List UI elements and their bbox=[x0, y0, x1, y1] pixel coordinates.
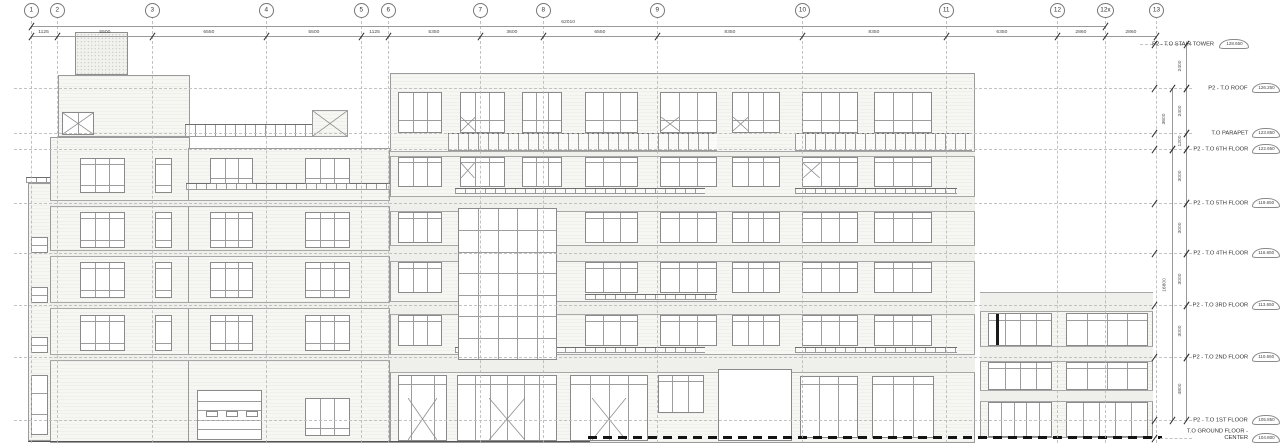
window-mullion bbox=[334, 159, 335, 183]
loading-opening bbox=[718, 369, 792, 441]
window bbox=[155, 315, 172, 351]
grid-bubble-1: 1 bbox=[24, 3, 39, 18]
window-mullion bbox=[211, 268, 252, 269]
window-mullion bbox=[875, 162, 931, 163]
window-mullion bbox=[803, 268, 857, 269]
elevation-value: 122.650 bbox=[1258, 147, 1274, 151]
grid-number: 3 bbox=[150, 7, 154, 13]
grid-bubble-13: 13 bbox=[1149, 3, 1164, 18]
dimension-value-text: 6350 bbox=[996, 30, 1007, 35]
dimension-value: 2860 bbox=[1111, 29, 1151, 35]
window bbox=[80, 315, 125, 351]
wing-parapet-band bbox=[980, 292, 1153, 312]
vertical-dimension-text: 2400 bbox=[1178, 105, 1183, 116]
window bbox=[660, 262, 717, 293]
window-mullion bbox=[413, 93, 414, 132]
strip-window bbox=[31, 287, 48, 303]
dimension-value-text: 2860 bbox=[1075, 30, 1086, 35]
grid-line-3 bbox=[152, 16, 153, 443]
window-mullion bbox=[459, 338, 556, 339]
level-label-line: CENTER bbox=[1176, 435, 1248, 441]
grid-line-11 bbox=[946, 16, 947, 443]
elevation-bubble: 128.650 bbox=[1219, 39, 1249, 49]
garage-door-lite bbox=[246, 411, 258, 417]
window bbox=[80, 158, 125, 193]
level-label-text: P2 - T.O 2ND FLOOR bbox=[1192, 354, 1248, 360]
grid-line-8 bbox=[543, 16, 544, 443]
entry-door-swing bbox=[408, 398, 437, 440]
window-mullion bbox=[586, 218, 637, 219]
window-mullion bbox=[475, 376, 476, 440]
grid-line-1 bbox=[31, 16, 32, 443]
level-label-text: P2 - T.O 6TH FLOOR bbox=[1193, 146, 1248, 152]
level-line bbox=[14, 203, 1192, 204]
window bbox=[210, 262, 253, 298]
window-mullion bbox=[875, 120, 931, 121]
window-mullion bbox=[1127, 363, 1128, 389]
level-line bbox=[14, 305, 1192, 306]
elevation-value: 104.800 bbox=[1258, 436, 1274, 440]
window bbox=[305, 212, 350, 248]
window-mullion bbox=[306, 428, 349, 429]
window-mullion bbox=[590, 376, 591, 440]
grid-bubble-11: 11 bbox=[939, 3, 954, 18]
window-mullion bbox=[1087, 363, 1088, 389]
elevation-value: 105.850 bbox=[1258, 418, 1274, 422]
window-mullion bbox=[803, 120, 857, 121]
dimension-value: 8350 bbox=[854, 29, 894, 35]
window-mullion bbox=[1107, 314, 1108, 345]
window-mullion bbox=[459, 295, 556, 296]
grade-line bbox=[28, 441, 590, 442]
dimension-value-text: 3600 bbox=[506, 30, 517, 35]
window bbox=[874, 92, 932, 133]
grid-line-7 bbox=[480, 16, 481, 443]
window-mullion bbox=[763, 93, 764, 132]
window-mullion bbox=[548, 93, 549, 132]
dimension-value: 3600 bbox=[492, 29, 532, 35]
level-label-text: P2 - T.O 5TH FLOOR bbox=[1193, 200, 1248, 206]
elevation-value: 123.850 bbox=[1258, 131, 1274, 135]
window-mullion bbox=[156, 185, 171, 186]
vertical-dimension: 16800 bbox=[1147, 282, 1181, 288]
window bbox=[660, 212, 717, 243]
level-line bbox=[14, 133, 1192, 134]
overall-dimension-line bbox=[31, 26, 1105, 27]
casement-icon bbox=[461, 117, 475, 131]
window-mullion bbox=[536, 93, 537, 132]
window-mullion bbox=[459, 316, 556, 317]
window-mullion bbox=[81, 218, 124, 219]
window bbox=[802, 262, 858, 293]
grid-number: 11 bbox=[943, 7, 950, 13]
grid-bubble-6: 6 bbox=[381, 3, 396, 18]
grid-line-13 bbox=[1156, 16, 1157, 443]
grid-number: 10 bbox=[798, 7, 805, 13]
window bbox=[155, 262, 172, 298]
floor-band bbox=[980, 390, 1153, 402]
window-mullion bbox=[912, 93, 913, 132]
level-label-text: P2 - T.O ROOF bbox=[1209, 85, 1248, 91]
window bbox=[802, 315, 858, 346]
window-mullion bbox=[733, 321, 779, 322]
grid-bubble-5: 5 bbox=[354, 3, 369, 18]
garage-door-lite bbox=[206, 411, 218, 417]
window-mullion bbox=[306, 218, 349, 219]
window bbox=[80, 262, 125, 298]
window-mullion bbox=[399, 268, 441, 269]
window-mullion bbox=[399, 218, 441, 219]
window-mullion bbox=[81, 164, 124, 165]
ground-window bbox=[658, 375, 704, 413]
window-mullion bbox=[399, 162, 441, 163]
window bbox=[398, 157, 442, 187]
vertical-dimension-text: 2400 bbox=[1178, 60, 1183, 71]
window bbox=[210, 212, 253, 248]
vertical-dimension-line bbox=[1186, 44, 1187, 420]
window bbox=[585, 92, 638, 133]
window-mullion bbox=[679, 93, 680, 132]
window-mullion bbox=[81, 268, 124, 269]
grid-bubble-9: 9 bbox=[650, 3, 665, 18]
window-mullion bbox=[873, 384, 933, 385]
grid-bubble-12: 12 bbox=[1050, 3, 1065, 18]
grid-number: 12x bbox=[1100, 7, 1110, 13]
level-label: P2 - T.O 6TH FLOOR bbox=[1140, 145, 1248, 153]
window bbox=[305, 262, 350, 298]
vertical-dimension-text: 3000 bbox=[1178, 222, 1183, 233]
window-mullion bbox=[913, 377, 914, 437]
window-mullion bbox=[661, 321, 716, 322]
window bbox=[732, 315, 780, 346]
level-label: P2 - T.O 1ST FLOOR bbox=[1140, 416, 1248, 424]
level-label: P2 - T.O 4TH FLOOR bbox=[1140, 249, 1248, 257]
vertical-dimension-text: 3600 bbox=[1162, 113, 1167, 124]
window bbox=[398, 262, 442, 293]
window-mullion bbox=[620, 93, 621, 132]
window bbox=[732, 262, 780, 293]
window bbox=[874, 315, 932, 346]
window-mullion bbox=[211, 290, 252, 291]
strip-window-tall bbox=[31, 375, 48, 435]
window-mullion bbox=[821, 93, 822, 132]
vertical-dimension: 1200 bbox=[1163, 138, 1197, 144]
window-mullion bbox=[334, 399, 335, 435]
elevation-value: 116.650 bbox=[1258, 251, 1274, 255]
elevation-value: 126.250 bbox=[1258, 86, 1274, 90]
window-mullion bbox=[1005, 363, 1006, 389]
level-line bbox=[14, 253, 1192, 254]
dimension-value: 5500 bbox=[294, 29, 334, 35]
floor-band bbox=[980, 346, 1153, 362]
strip-window bbox=[31, 337, 48, 353]
dimension-value-text: 6550 bbox=[594, 30, 605, 35]
level-label-text: P2 - T.O 3RD FLOOR bbox=[1192, 302, 1248, 308]
vertical-dimension: 3000 bbox=[1163, 328, 1197, 334]
window bbox=[874, 212, 932, 243]
elevation-bubble: 126.250 bbox=[1252, 83, 1280, 93]
elevation-bubble: 116.650 bbox=[1252, 248, 1280, 258]
window-mullion bbox=[659, 381, 703, 382]
window bbox=[305, 398, 350, 436]
window-mullion bbox=[320, 399, 321, 435]
window-mullion bbox=[458, 384, 556, 385]
elevation-bubble: 119.650 bbox=[1252, 198, 1280, 208]
elevation-value: 128.650 bbox=[1226, 42, 1242, 46]
garage-door-lite bbox=[226, 411, 238, 417]
strip-window bbox=[31, 237, 48, 253]
window-mullion bbox=[399, 384, 446, 385]
grade-dashed-line bbox=[588, 436, 1162, 439]
vertical-dimension: 3000 bbox=[1163, 225, 1197, 231]
window-mullion bbox=[81, 290, 124, 291]
window-mullion bbox=[1005, 314, 1006, 345]
entry-door-swing bbox=[592, 398, 626, 440]
storefront bbox=[872, 376, 934, 438]
vertical-dimension-text: 4800 bbox=[1178, 383, 1183, 394]
window-mullion bbox=[1020, 363, 1021, 389]
window-mullion bbox=[306, 178, 349, 179]
vertical-dimension-text: 3000 bbox=[1178, 170, 1183, 181]
window-mullion bbox=[586, 268, 637, 269]
level-label-text: P2 - T.O 4TH FLOOR bbox=[1193, 250, 1248, 256]
window-mullion bbox=[489, 93, 490, 132]
grid-line-10 bbox=[802, 16, 803, 443]
window-mullion bbox=[32, 393, 47, 394]
window bbox=[398, 92, 442, 133]
vertical-dimension: 3000 bbox=[1163, 173, 1197, 179]
window-mullion bbox=[211, 218, 252, 219]
window-mullion bbox=[81, 185, 124, 186]
elevation-value: 110.650 bbox=[1258, 355, 1274, 359]
window-mullion bbox=[211, 240, 252, 241]
window-mullion bbox=[306, 343, 349, 344]
window-mullion bbox=[803, 321, 857, 322]
elevation-bubble: 110.650 bbox=[1252, 352, 1280, 362]
window-mullion bbox=[1087, 314, 1088, 345]
window-mullion bbox=[211, 321, 252, 322]
window bbox=[874, 262, 932, 293]
window bbox=[585, 315, 638, 346]
level-line bbox=[14, 357, 1192, 358]
overall-dimension-text: 62010 bbox=[561, 19, 575, 24]
level-line bbox=[14, 149, 1192, 150]
elevation-bubble: 113.650 bbox=[1252, 300, 1280, 310]
grid-bubble-12x: 12x bbox=[1097, 3, 1114, 18]
window bbox=[210, 315, 253, 351]
window-mullion bbox=[427, 93, 428, 132]
window-mullion bbox=[156, 164, 171, 165]
window-mullion bbox=[156, 218, 171, 219]
dimension-value: 5350 bbox=[414, 29, 454, 35]
window bbox=[522, 157, 562, 187]
window-mullion bbox=[306, 321, 349, 322]
window bbox=[732, 157, 780, 187]
elevation-drawing: 6201011255500655055001125535036006550835… bbox=[0, 0, 1280, 445]
window-mullion bbox=[156, 240, 171, 241]
window bbox=[660, 315, 717, 346]
grid-bubble-4: 4 bbox=[259, 3, 274, 18]
window-mullion bbox=[1036, 314, 1037, 345]
window-mullion bbox=[32, 245, 47, 246]
vertical-dimension-text: 16800 bbox=[1162, 278, 1167, 292]
grid-number: 7 bbox=[478, 7, 482, 13]
window-mullion bbox=[819, 377, 820, 437]
window-mullion bbox=[306, 240, 349, 241]
window-mullion bbox=[803, 218, 857, 219]
window-mullion bbox=[523, 162, 561, 163]
expansion-joint bbox=[996, 314, 999, 345]
window-mullion bbox=[156, 321, 171, 322]
window-mullion bbox=[838, 377, 839, 437]
elevation-value: 113.650 bbox=[1258, 303, 1274, 307]
window-mullion bbox=[238, 159, 239, 183]
vertical-dimension: 4800 bbox=[1163, 386, 1197, 392]
grid-line-12 bbox=[1057, 16, 1058, 443]
window-mullion bbox=[801, 384, 857, 385]
grid-number: 8 bbox=[541, 7, 545, 13]
setback-window bbox=[210, 158, 253, 184]
window-mullion bbox=[32, 345, 47, 346]
dimension-value: 2860 bbox=[1061, 29, 1101, 35]
window-mullion bbox=[211, 343, 252, 344]
window-mullion bbox=[1020, 314, 1021, 345]
window-mullion bbox=[1067, 368, 1147, 369]
window-mullion bbox=[733, 218, 779, 219]
window-mullion bbox=[306, 290, 349, 291]
juliet-railing bbox=[795, 188, 957, 194]
vertical-dimension: 2400 bbox=[1163, 108, 1197, 114]
level-label: P2 - T.O 2ND FLOOR bbox=[1140, 353, 1248, 361]
window-mullion bbox=[1107, 363, 1108, 389]
entry-door-swing bbox=[489, 398, 525, 440]
dimension-value-text: 8350 bbox=[868, 30, 879, 35]
level-label-text: T.O GROUND FLOOR -CENTER bbox=[1176, 429, 1248, 441]
dimension-value: 6550 bbox=[580, 29, 620, 35]
level-line bbox=[14, 420, 1192, 421]
window-mullion bbox=[81, 343, 124, 344]
window-mullion bbox=[539, 376, 540, 440]
grid-number: 2 bbox=[55, 7, 59, 13]
grid-number: 12 bbox=[1053, 7, 1060, 13]
vertical-dimension-text: 1200 bbox=[1178, 135, 1183, 146]
grid-number: 5 bbox=[359, 7, 363, 13]
dimension-value-text: 6550 bbox=[203, 30, 214, 35]
window-mullion bbox=[1127, 314, 1128, 345]
dimension-value-text: 5500 bbox=[99, 30, 110, 35]
grid-bubble-7: 7 bbox=[473, 3, 488, 18]
dimension-value-text: 1125 bbox=[39, 30, 50, 35]
grid-number: 4 bbox=[264, 7, 268, 13]
casement-icon bbox=[803, 163, 820, 178]
window bbox=[155, 158, 172, 193]
window-mullion bbox=[320, 159, 321, 183]
window-mullion bbox=[603, 93, 604, 132]
juliet-railing bbox=[795, 347, 957, 353]
grid-line-9 bbox=[657, 16, 658, 443]
grid-number: 9 bbox=[655, 7, 659, 13]
grid-line-5 bbox=[361, 16, 362, 443]
level-line bbox=[14, 88, 1192, 89]
window-mullion bbox=[225, 159, 226, 183]
window-mullion bbox=[517, 209, 518, 359]
overall-dimension: 62010 bbox=[538, 18, 598, 25]
dimension-value: 6550 bbox=[189, 29, 229, 35]
window bbox=[660, 157, 717, 187]
band-window bbox=[988, 362, 1052, 390]
dimension-value: 5500 bbox=[85, 29, 125, 35]
dimension-value: 1125 bbox=[355, 29, 395, 35]
grid-bubble-3: 3 bbox=[145, 3, 160, 18]
window bbox=[874, 157, 932, 187]
window-mullion bbox=[399, 321, 441, 322]
window-mullion bbox=[661, 218, 716, 219]
window bbox=[80, 212, 125, 248]
window-mullion bbox=[1036, 363, 1037, 389]
window-mullion bbox=[156, 268, 171, 269]
window-mullion bbox=[875, 218, 931, 219]
window-mullion bbox=[697, 93, 698, 132]
window-mullion bbox=[875, 268, 931, 269]
grid-bubble-8: 8 bbox=[536, 3, 551, 18]
window-mullion bbox=[156, 290, 171, 291]
setback-window bbox=[305, 158, 350, 184]
window bbox=[398, 212, 442, 243]
window-mullion bbox=[459, 273, 556, 274]
grid-bubble-2: 2 bbox=[50, 3, 65, 18]
juliet-railing bbox=[585, 294, 717, 300]
band-window bbox=[1066, 313, 1148, 346]
window-mullion bbox=[893, 93, 894, 132]
window bbox=[585, 157, 638, 187]
level-label: P2 - T.O ROOF bbox=[1140, 84, 1248, 92]
juliet-railing bbox=[455, 188, 705, 194]
window-mullion bbox=[733, 268, 779, 269]
level-label-text: T.O PARAPET bbox=[1211, 130, 1248, 136]
dimension-value-text: 2860 bbox=[1125, 30, 1136, 35]
window-mullion bbox=[81, 240, 124, 241]
window bbox=[802, 92, 858, 133]
window-mullion bbox=[399, 120, 441, 121]
window bbox=[585, 262, 638, 293]
dimension-value: 6350 bbox=[982, 29, 1022, 35]
window bbox=[155, 212, 172, 248]
vertical-dimension: 3600 bbox=[1147, 116, 1181, 122]
vertical-dimension: 2400 bbox=[1163, 63, 1197, 69]
level-label: T.O PARAPET bbox=[1140, 129, 1248, 137]
level-label: T.O GROUND FLOOR -CENTER bbox=[1148, 428, 1248, 442]
band-window bbox=[1066, 362, 1148, 390]
grid-number: 6 bbox=[386, 7, 390, 13]
window-mullion bbox=[211, 178, 252, 179]
window-mullion bbox=[32, 414, 47, 415]
window-mullion bbox=[32, 295, 47, 296]
window-mullion bbox=[571, 384, 647, 385]
dimension-value: 1125 bbox=[24, 29, 64, 35]
window bbox=[305, 315, 350, 351]
grid-number: 13 bbox=[1152, 7, 1159, 13]
elevation-bubble: 122.650 bbox=[1252, 144, 1280, 154]
window-mullion bbox=[156, 343, 171, 344]
level-label: P2 - T.O STAIR TOWER bbox=[1108, 40, 1214, 48]
window-mullion bbox=[537, 209, 538, 359]
dimension-value: 8350 bbox=[710, 29, 750, 35]
window-mullion bbox=[306, 268, 349, 269]
vertical-dimension-text: 3000 bbox=[1178, 325, 1183, 336]
level-label: P2 - T.O 5TH FLOOR bbox=[1140, 199, 1248, 207]
window bbox=[732, 212, 780, 243]
window-mullion bbox=[198, 401, 261, 402]
